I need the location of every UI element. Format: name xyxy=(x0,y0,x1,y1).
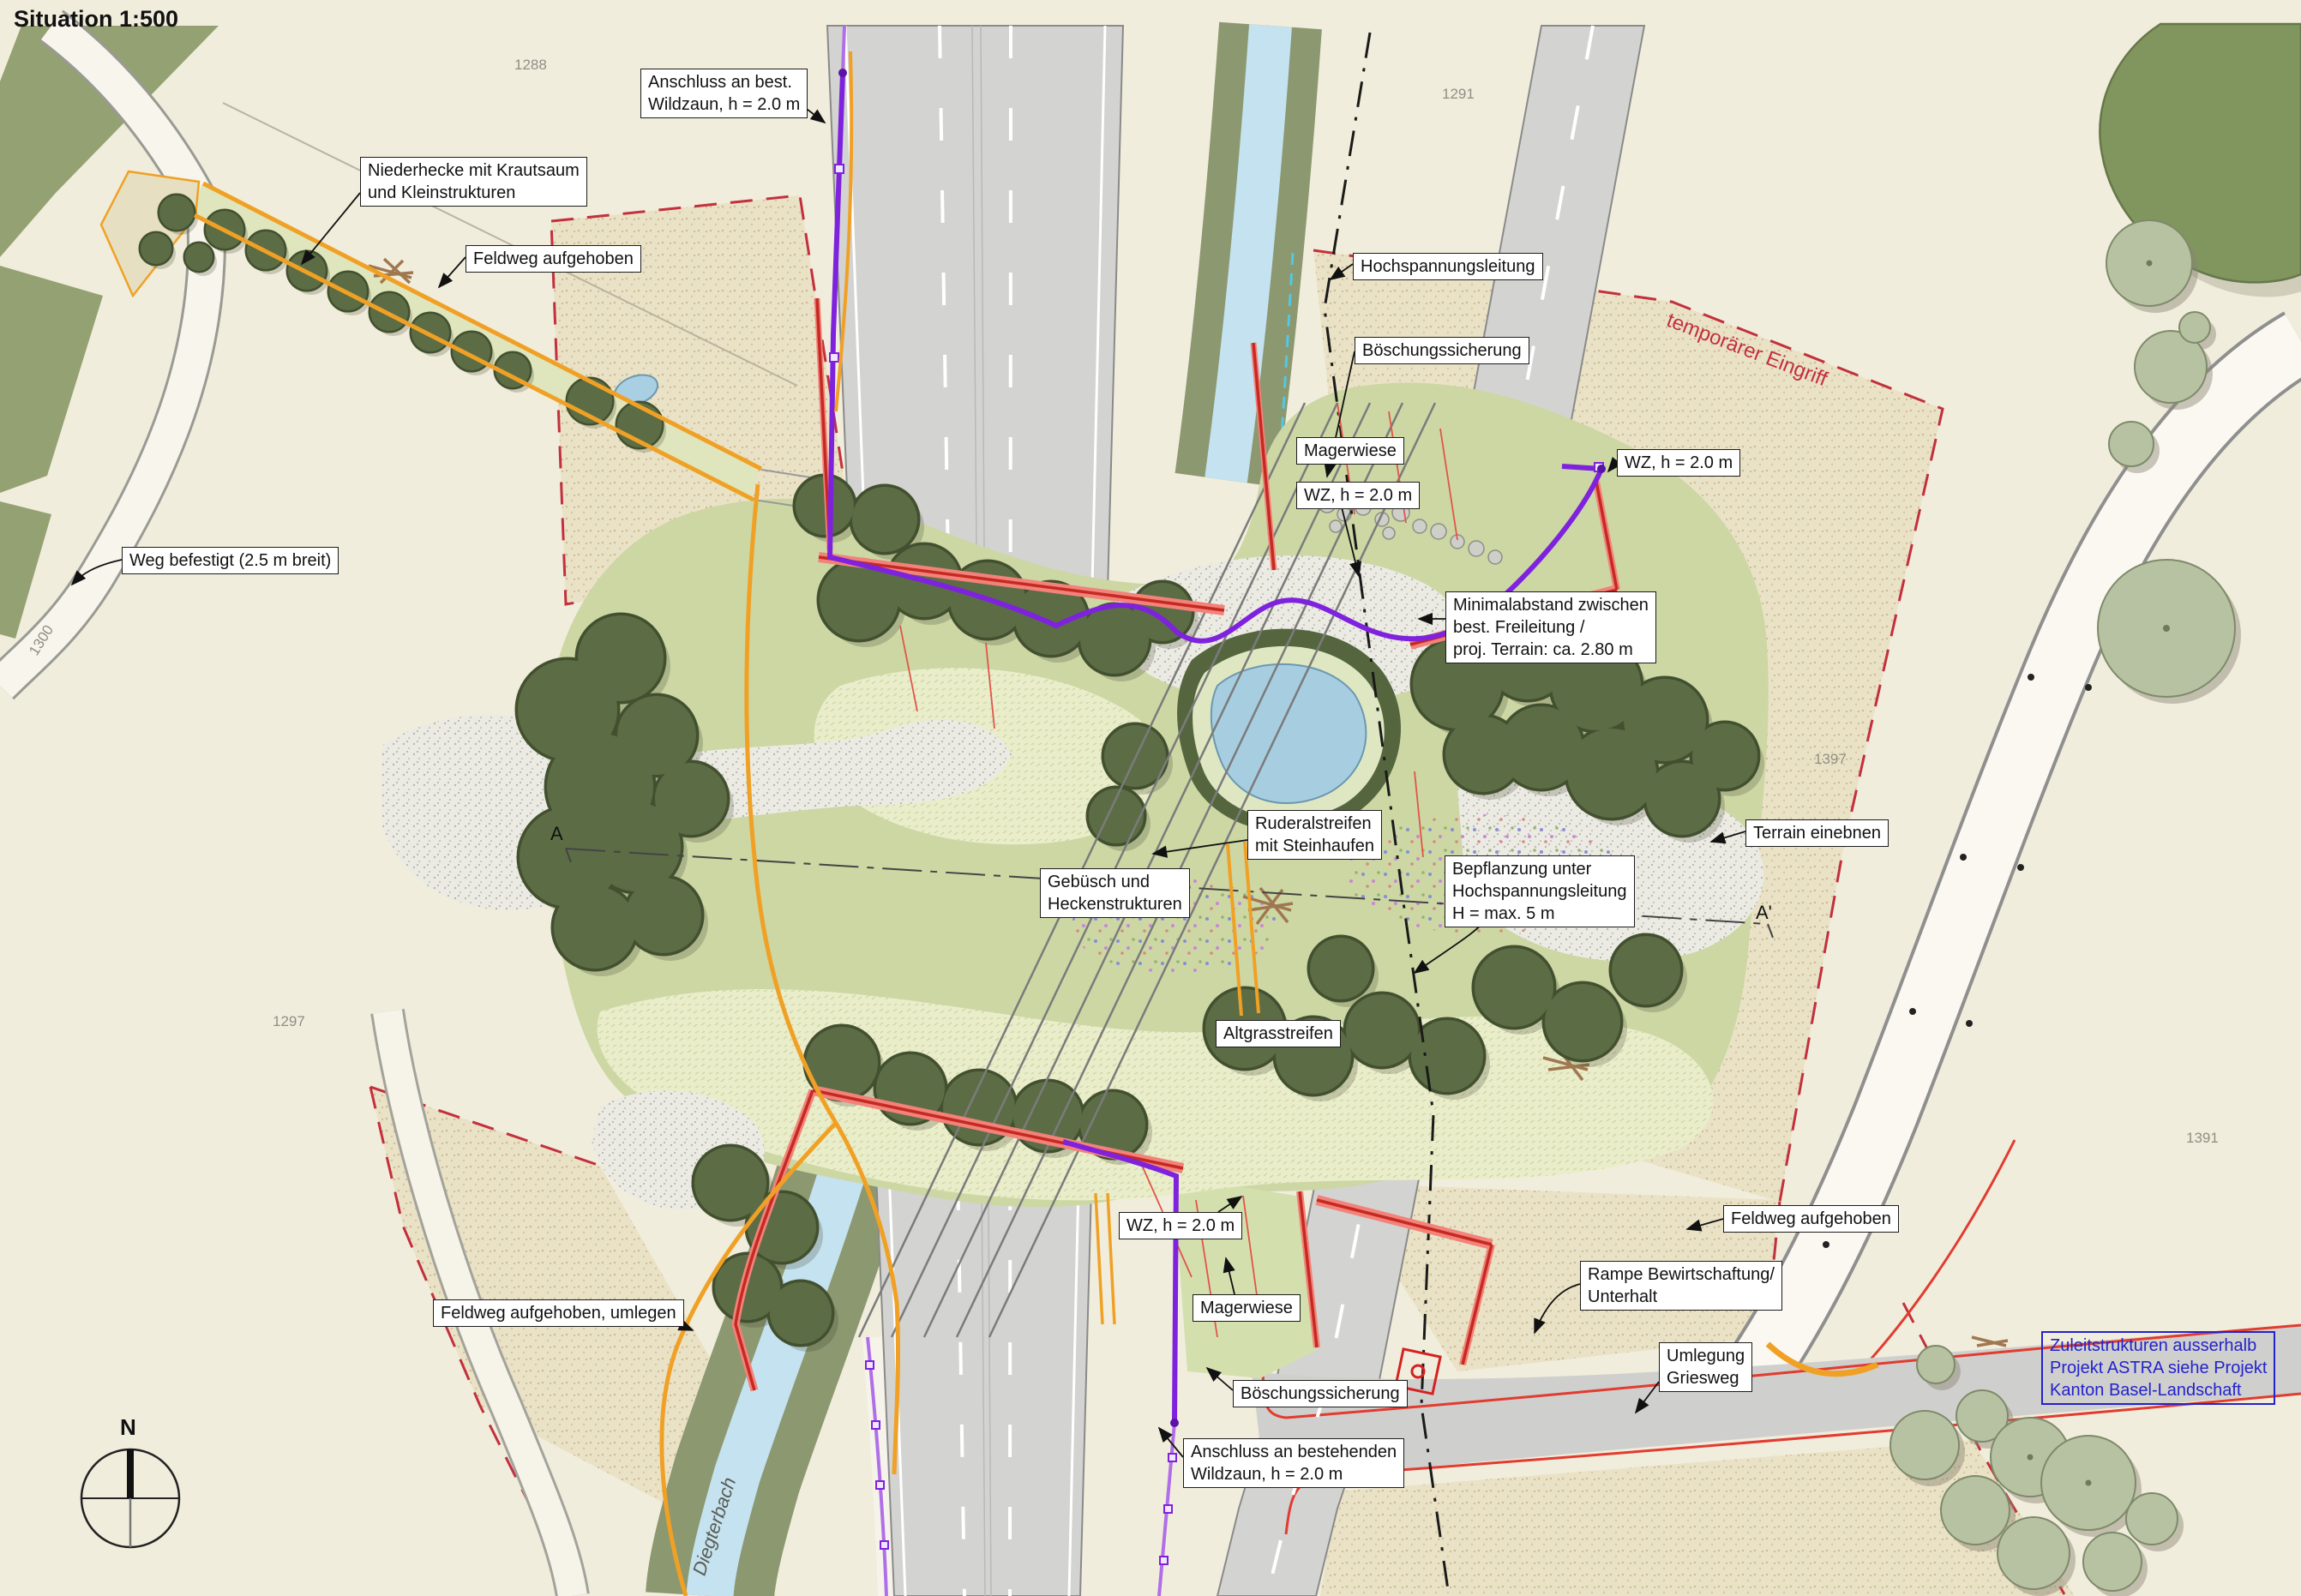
label-wildzaun-top-right: WZ, h = 2.0 m xyxy=(1617,449,1740,477)
label-wildzaun-bottom: WZ, h = 2.0 m xyxy=(1119,1212,1242,1239)
label-boeschungssicherung-top: Böschungssicherung xyxy=(1355,337,1529,364)
label-umlegung-griesweg: Umlegung Griesweg xyxy=(1659,1342,1752,1392)
label-rampe: Rampe Bewirtschaftung/ Unterhalt xyxy=(1580,1261,1782,1311)
label-wildzaun-top-left: WZ, h = 2.0 m xyxy=(1296,482,1420,509)
existing-fence-top xyxy=(843,26,844,73)
label-bepflanzung: Bepflanzung unter Hochspannungsleitung H… xyxy=(1445,855,1635,927)
plan-drawing xyxy=(0,0,2301,1596)
note-zuleitstrukturen: Zuleitstrukturen ausserhalb Projekt ASTR… xyxy=(2041,1331,2275,1405)
parcel-number: 1291 xyxy=(1442,86,1475,103)
parcel-number: 1397 xyxy=(1814,751,1847,768)
label-gebuesch: Gebüsch und Heckenstrukturen xyxy=(1040,868,1190,918)
label-feldweg-umlegen: Feldweg aufgehoben, umlegen xyxy=(433,1299,684,1327)
label-anschluss-wildzaun-bottom: Anschluss an bestehenden Wildzaun, h = 2… xyxy=(1183,1438,1404,1488)
label-weg-befestigt: Weg befestigt (2.5 m breit) xyxy=(122,547,339,574)
plan-title: Situation 1:500 xyxy=(14,5,178,33)
label-feldweg-aufgehoben-top: Feldweg aufgehoben xyxy=(466,245,641,273)
label-magerwiese-top: Magerwiese xyxy=(1296,437,1404,465)
section-marker-a: A xyxy=(550,823,563,845)
label-boeschungssicherung-bottom: Böschungssicherung xyxy=(1233,1380,1408,1407)
label-magerwiese-bottom: Magerwiese xyxy=(1193,1294,1301,1322)
label-terrain-einebnen: Terrain einebnen xyxy=(1745,819,1889,847)
pond xyxy=(1177,629,1401,832)
parcel-number: 1288 xyxy=(514,57,547,74)
label-niederhecke: Niederhecke mit Krautsaum und Kleinstruk… xyxy=(360,157,587,207)
label-ruderalstreifen: Ruderalstreifen mit Steinhaufen xyxy=(1247,810,1382,860)
label-minimalabstand: Minimalabstand zwischen best. Freileitun… xyxy=(1445,591,1656,663)
label-anschluss-wildzaun-top: Anschluss an best. Wildzaun, h = 2.0 m xyxy=(640,69,808,118)
north-label: N xyxy=(120,1414,136,1441)
label-hochspannungsleitung: Hochspannungsleitung xyxy=(1353,253,1543,280)
north-compass xyxy=(81,1449,179,1547)
label-feldweg-aufgehoben-right: Feldweg aufgehoben xyxy=(1723,1205,1899,1233)
parcel-number: 1297 xyxy=(273,1013,305,1030)
label-altgrasstreifen: Altgrasstreifen xyxy=(1216,1020,1341,1047)
section-marker-a-prime: A' xyxy=(1756,902,1772,924)
site-plan: Situation 1:500 Anschluss an best. Wildz… xyxy=(0,0,2301,1596)
parcel-number: 1391 xyxy=(2186,1130,2219,1147)
